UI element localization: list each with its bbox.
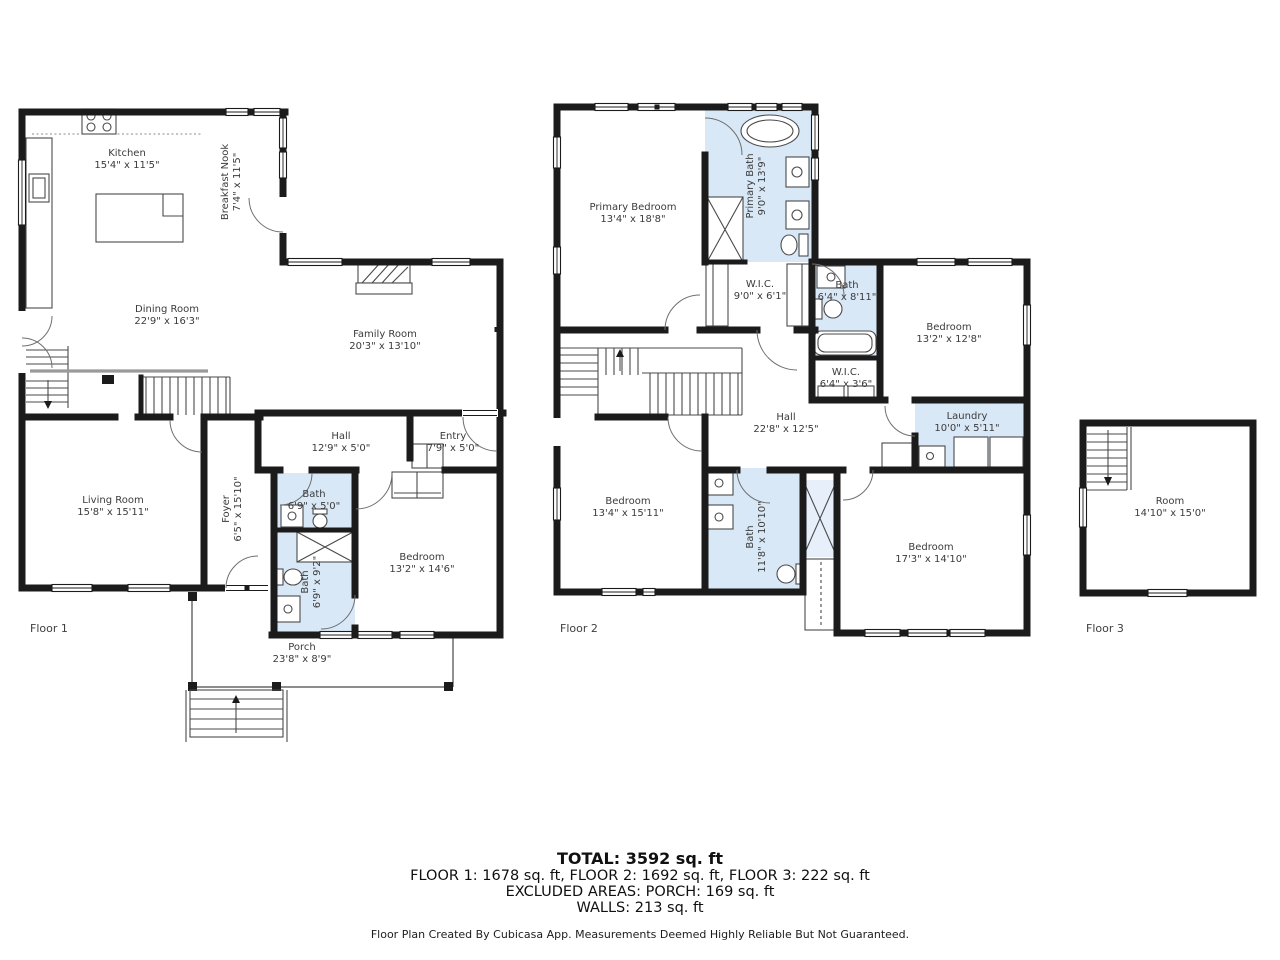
room-label-bedroom-f1: Bedroom13'2" x 14'6" — [389, 552, 454, 576]
walls-area: WALLS: 213 sq. ft — [0, 900, 1280, 916]
floor-areas: FLOOR 1: 1678 sq. ft, FLOOR 2: 1692 sq. … — [0, 868, 1280, 884]
room-label-bath-118: Bath11'8" x 10'10" — [745, 501, 769, 573]
room-label-breakfast-nook: Breakfast Nook7'4" x 11'5" — [220, 144, 244, 220]
room-label-living-room: Living Room15'8" x 15'11" — [77, 495, 149, 519]
room-label-wic-2: W.I.C.6'4" x 3'6" — [820, 367, 872, 391]
stairs-floor2 — [560, 348, 742, 417]
room-label-wic-1: W.I.C.9'0" x 6'1" — [734, 279, 786, 303]
sink-icon — [276, 596, 300, 622]
sink-icon — [706, 471, 733, 495]
room-label-bath-64: Bath6'4" x 8'11" — [818, 280, 877, 304]
room-label-foyer: Foyer6'5" x 15'10" — [221, 476, 245, 541]
porch-steps — [186, 690, 287, 742]
floor-1-caption: Floor 1 — [30, 622, 68, 635]
room-label-dining-room: Dining Room22'9" x 16'3" — [134, 304, 199, 328]
area-summary: TOTAL: 3592 sq. ft FLOOR 1: 1678 sq. ft,… — [0, 850, 1280, 941]
room-label-kitchen: Kitchen15'4" x 11'5" — [94, 148, 159, 172]
floorplan-canvas — [0, 0, 1280, 960]
floor-2-caption: Floor 2 — [560, 622, 598, 635]
sink-icon — [786, 157, 809, 187]
room-label-bath2-f1: Bath6'9" x 9'2" — [300, 556, 324, 608]
room-label-primary-bath: Primary Bath9'0" x 13'9" — [745, 153, 769, 218]
room-label-room-f3: Room14'10" x 15'0" — [1134, 496, 1206, 520]
room-label-porch: Porch23'8" x 8'9" — [273, 642, 332, 666]
room-label-bedroom-134: Bedroom13'4" x 15'11" — [592, 496, 664, 520]
room-label-bedroom-173: Bedroom17'3" x 14'10" — [895, 542, 967, 566]
room-label-bedroom-132: Bedroom13'2" x 12'8" — [916, 322, 981, 346]
room-label-hall-f2: Hall22'8" x 12'5" — [753, 412, 818, 436]
room-label-bath1-f1: Bath6'9" x 5'0" — [288, 489, 340, 513]
dryer-icon — [990, 437, 1023, 467]
sink-icon — [786, 201, 809, 229]
room-label-family-room: Family Room20'3" x 13'10" — [349, 329, 421, 353]
sink-icon — [706, 505, 733, 529]
floorplan-page: { "colors":{"wall":"#1b1b1b","bath_fill"… — [0, 0, 1280, 960]
stairs-floor1 — [26, 346, 230, 415]
room-label-entry: Entry7'9" x 5'0" — [427, 431, 479, 455]
stairwell-opening — [553, 418, 561, 446]
washer-icon — [954, 437, 988, 467]
disclaimer: Floor Plan Created By Cubicasa App. Meas… — [0, 928, 1280, 941]
room-label-primary-bedroom: Primary Bedroom13'4" x 18'8" — [589, 202, 676, 226]
fireplace-icon — [356, 263, 412, 294]
total-area: TOTAL: 3592 sq. ft — [0, 850, 1280, 868]
floor-1-door-openings — [18, 197, 498, 592]
room-label-hall-f1: Hall12'9" x 5'0" — [312, 431, 371, 455]
room-label-laundry: Laundry10'0" x 5'11" — [934, 411, 999, 435]
kitchen-fixtures — [26, 109, 202, 308]
floor-1-plan — [18, 109, 503, 743]
sink-icon — [919, 446, 945, 467]
excluded-areas: EXCLUDED AREAS: PORCH: 169 sq. ft — [0, 884, 1280, 900]
toilet-icon — [799, 234, 808, 256]
stairs-floor3 — [1087, 427, 1131, 490]
kitchen-island — [96, 194, 183, 242]
floor-3-caption: Floor 3 — [1086, 622, 1124, 635]
